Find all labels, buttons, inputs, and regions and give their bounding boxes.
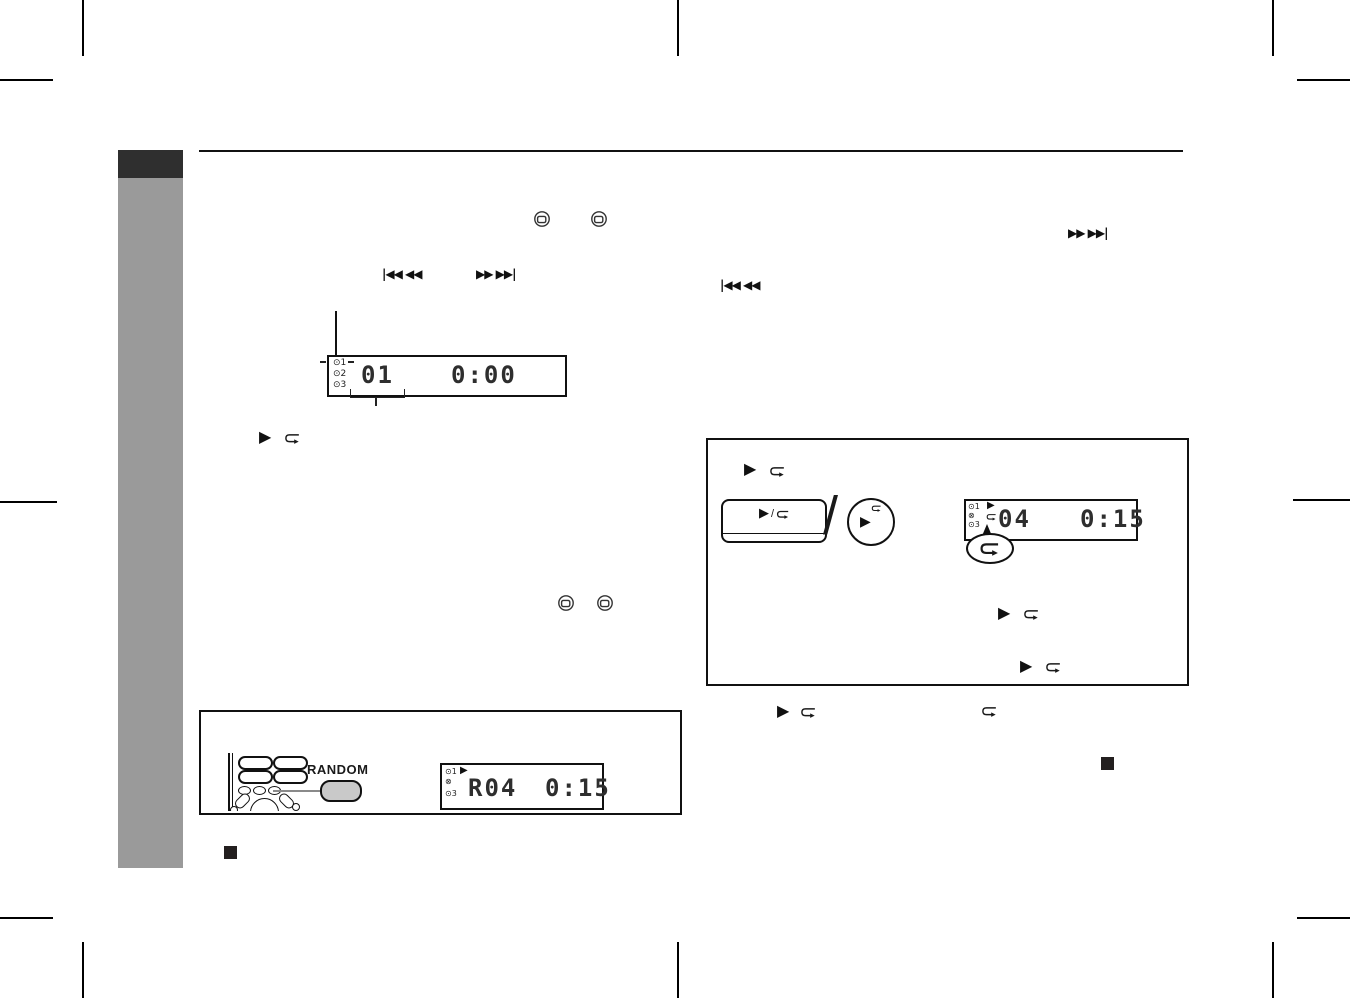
random-button (320, 780, 362, 802)
time-readout: 0:00 (451, 361, 517, 389)
play-icon: ▶ (744, 461, 756, 477)
disc-change-icon (590, 210, 608, 228)
sidebar-band (118, 178, 183, 868)
note-bullet (1101, 757, 1114, 770)
disc2-crossed-indicator: ⊗ (445, 777, 452, 787)
callout-bracket (350, 389, 405, 398)
skip-back-icon: |◀◀ ◀◀ (720, 278, 759, 292)
indicator-dash (348, 361, 354, 363)
skip-back-icon: |◀◀ ◀◀ (382, 267, 421, 281)
disc2-crossed-indicator: ⊗ (968, 511, 975, 520)
remote-tiny-button (230, 806, 238, 811)
play-indicator: ▶ (987, 501, 995, 511)
repeat-icon (979, 542, 1001, 556)
crop-mark (677, 0, 679, 56)
crop-mark (0, 79, 53, 81)
callout-bracket-tick (375, 397, 377, 406)
manual-page: |◀◀ ◀◀ ▶▶ ▶▶| ⊙1 ⊙2 ⊙3 01 0:00 ▶ (0, 0, 1350, 998)
play-indicator: ▶ (460, 766, 468, 776)
skip-forward-icon: ▶▶ ▶▶| (476, 267, 515, 281)
track-number: 04 (998, 505, 1031, 533)
lcd-display: ⊙1 ⊗ ⊙3 ▶ R04 0:15 (440, 763, 604, 810)
crop-mark (82, 0, 84, 56)
remote-button (273, 756, 308, 770)
crop-mark (82, 942, 84, 998)
repeat-icon (769, 466, 786, 477)
time-readout: 0:15 (545, 774, 611, 802)
crop-mark (1272, 942, 1274, 998)
repeat-indicator-icon (986, 513, 997, 521)
crop-mark (0, 917, 53, 919)
track-number: 01 (361, 361, 394, 389)
play-icon: ▶ (860, 513, 871, 531)
remote-dial (250, 798, 279, 811)
disc1-indicator: ⊙1 (445, 767, 457, 777)
disc-change-icon (596, 594, 614, 612)
indicator-dash (320, 361, 326, 363)
remote-play-button: ▶ (847, 498, 895, 546)
repeat-icon (981, 706, 998, 717)
callout-line (335, 311, 337, 358)
play-icon: ▶ (259, 429, 271, 445)
note-bullet (224, 846, 237, 859)
repeat-callout-balloon (966, 533, 1014, 564)
repeat-icon (776, 510, 790, 519)
disc2-indicator: ⊙2 (333, 369, 346, 380)
disc1-indicator: ⊙1 (968, 502, 980, 511)
crop-mark (1272, 0, 1274, 56)
time-readout: 0:15 (1080, 505, 1146, 533)
disc1-indicator: ⊙1 (333, 358, 346, 369)
remote-control-illustration (228, 753, 318, 811)
crop-mark (1297, 79, 1350, 81)
remote-tiny-button (292, 803, 300, 811)
slash: / (771, 508, 774, 520)
skip-forward-icon: ▶▶ ▶▶| (1068, 226, 1107, 240)
crop-mark (1293, 499, 1350, 501)
crop-mark (1297, 917, 1350, 919)
random-button-label: RANDOM (307, 762, 369, 777)
repeat-icon (1045, 662, 1062, 673)
track-number: R04 (468, 774, 517, 802)
crop-mark (0, 501, 57, 503)
remote-button (273, 770, 308, 784)
header-rule (199, 150, 1183, 152)
play-icon: ▶ (759, 509, 769, 519)
disc3-indicator: ⊙3 (445, 789, 457, 799)
play-icon: ▶ (1020, 658, 1032, 674)
repeat-icon (871, 505, 882, 512)
random-play-box: RANDOM ⊙1 ⊗ ⊙3 ▶ R04 0:15 (199, 710, 682, 815)
remote-button (238, 770, 273, 784)
repeat-icon (1023, 609, 1040, 620)
remote-button (238, 756, 273, 770)
disc3-indicator: ⊙3 (333, 380, 346, 391)
repeat-icon (800, 707, 817, 718)
repeat-play-box: ▶ ▶ / / ▶ ⊙1 ⊗ ⊙3 ▶ (706, 438, 1189, 686)
repeat-icon (284, 433, 301, 444)
disc3-indicator: ⊙3 (968, 520, 980, 529)
play-repeat-button: ▶ / (721, 499, 827, 543)
play-icon: ▶ (777, 703, 789, 719)
disc-change-icon (557, 594, 575, 612)
disc-change-icon (533, 210, 551, 228)
play-icon: ▶ (998, 605, 1010, 621)
slash-divider: / (823, 486, 838, 546)
remote-small-button (253, 786, 266, 795)
crop-mark (677, 942, 679, 998)
sidebar-chapter-tab (118, 150, 183, 178)
